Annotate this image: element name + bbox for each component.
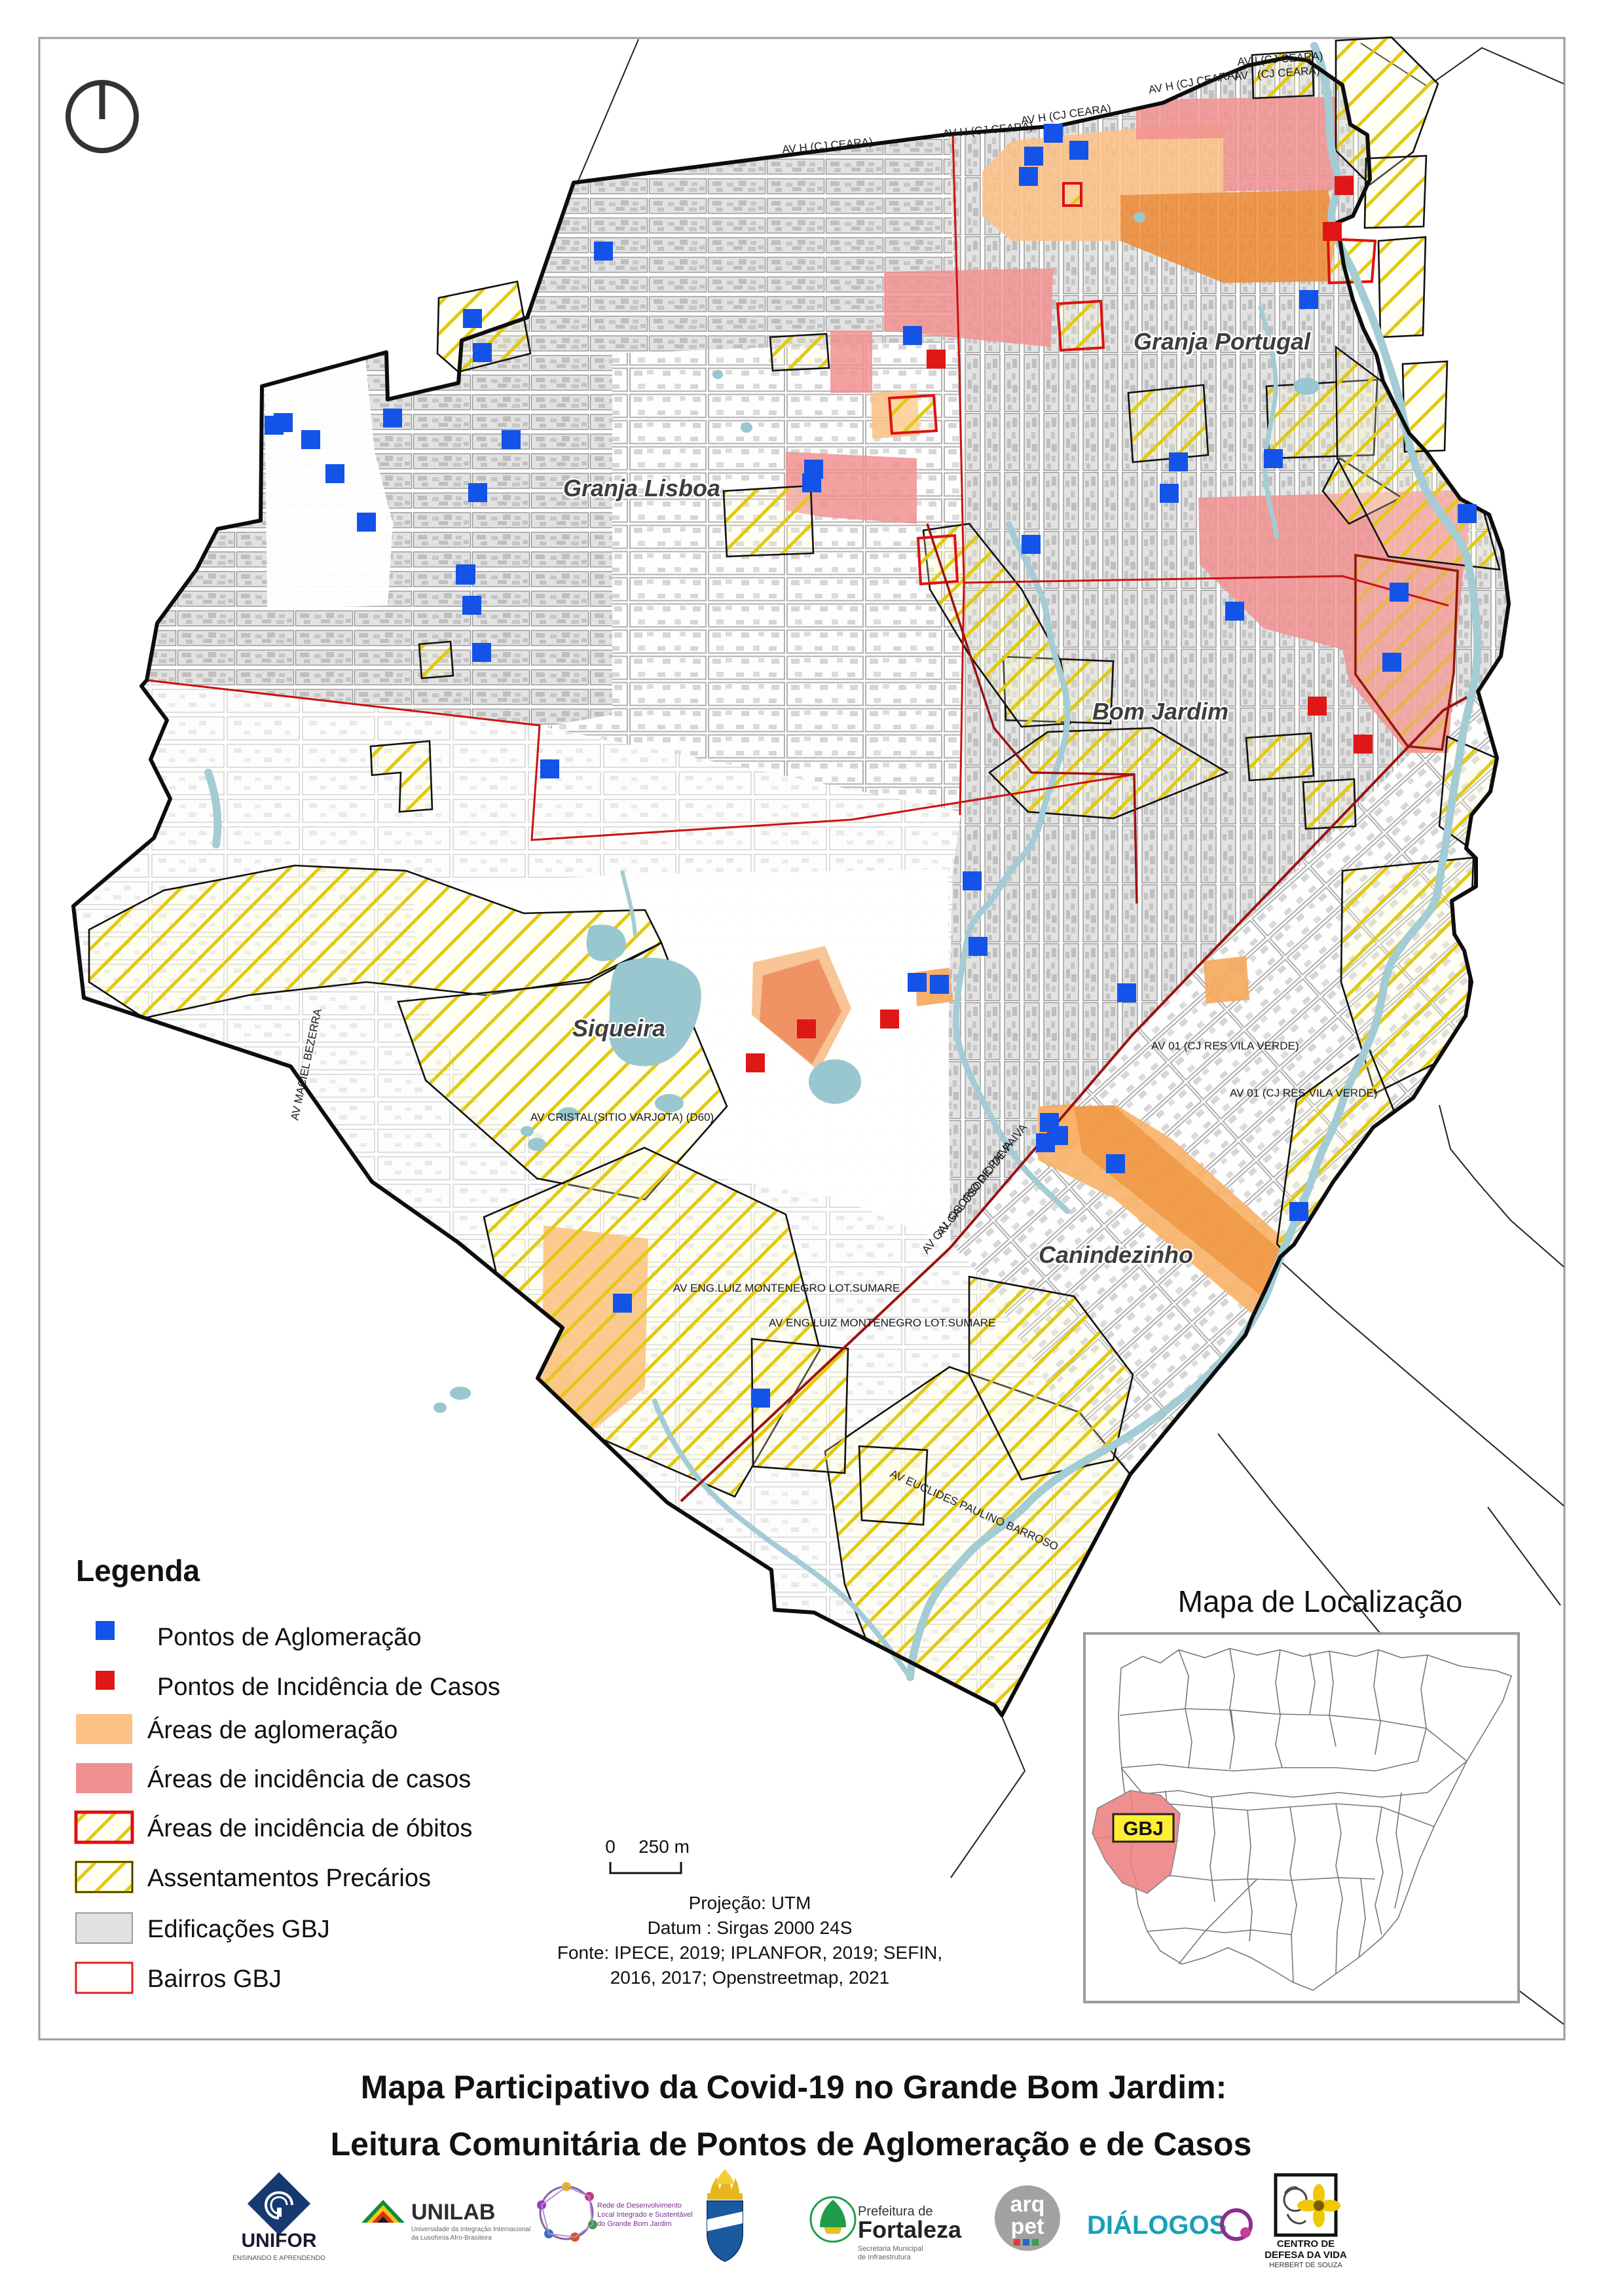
svg-text:Bairros GBJ: Bairros GBJ <box>147 1965 282 1993</box>
svg-text:UNILAB: UNILAB <box>411 2200 495 2225</box>
svg-text:da Lusofonia Afro-Brasileira: da Lusofonia Afro-Brasileira <box>411 2234 492 2242</box>
svg-text:Granja Lisboa: Granja Lisboa <box>563 475 720 501</box>
svg-text:CENTRO DE: CENTRO DE <box>1277 2238 1335 2250</box>
svg-text:Fortaleza: Fortaleza <box>858 2216 962 2243</box>
svg-text:Áreas de incidência de casos: Áreas de incidência de casos <box>147 1765 471 1793</box>
svg-text:Universidade da Integração Int: Universidade da Integração Internacional <box>411 2226 530 2233</box>
svg-text:pet: pet <box>1011 2214 1044 2239</box>
svg-text:Datum : Sirgas 2000 24S: Datum : Sirgas 2000 24S <box>648 1918 853 1938</box>
svg-text:GBJ: GBJ <box>1123 1818 1164 1840</box>
svg-text:Mapa Participativo da Covid-19: Mapa Participativo da Covid-19 no Grande… <box>361 2069 1227 2105</box>
svg-text:AV ENG.LUIZ MONTENEGRO LOT.SU: AV ENG.LUIZ MONTENEGRO LOT.SUMARE <box>769 1317 995 1329</box>
svg-text:Assentamentos Precários: Assentamentos Precários <box>147 1865 431 1892</box>
svg-text:Pontos de Incidência de Casos: Pontos de Incidência de Casos <box>157 1673 500 1701</box>
svg-text:UNIFOR: UNIFOR <box>242 2230 317 2251</box>
svg-text:DEFESA DA VIDA: DEFESA DA VIDA <box>1264 2250 1347 2261</box>
svg-text:0: 0 <box>605 1836 616 1857</box>
svg-text:Leitura Comunitária de Pontos: Leitura Comunitária de Pontos de Aglomer… <box>331 2126 1252 2162</box>
svg-text:Pontos de Aglomeração: Pontos de Aglomeração <box>157 1624 422 1651</box>
svg-text:Projeção: UTM: Projeção: UTM <box>689 1893 811 1913</box>
svg-text:AV ENG.LUIZ MONTENEGRO LOT.SU: AV ENG.LUIZ MONTENEGRO LOT.SUMARE <box>673 1282 900 1294</box>
svg-text:Fonte: IPECE, 2019; IPLANFOR,: Fonte: IPECE, 2019; IPLANFOR, 2019; SEFI… <box>557 1942 942 1963</box>
svg-text:Rede de Desenvolvimento: Rede de Desenvolvimento <box>597 2202 682 2210</box>
svg-text:Secretaria Municipal: Secretaria Municipal <box>858 2245 923 2253</box>
svg-text:do Grande Bom Jardim: do Grande Bom Jardim <box>597 2220 672 2228</box>
svg-text:Bom Jardim: Bom Jardim <box>1092 698 1228 725</box>
svg-text:arq: arq <box>1010 2192 1045 2217</box>
svg-text:AV CRISTAL(SITIO VARJOTA) (: AV CRISTAL(SITIO VARJOTA) (D60) <box>530 1111 714 1123</box>
svg-text:DIÁLOGOS: DIÁLOGOS <box>1087 2210 1227 2240</box>
svg-text:Siqueira: Siqueira <box>572 1015 665 1042</box>
svg-text:Canindezinho: Canindezinho <box>1039 1241 1193 1268</box>
svg-text:de Infraestrutura: de Infraestrutura <box>858 2253 912 2261</box>
svg-text:Edificações GBJ: Edificações GBJ <box>147 1916 330 1943</box>
svg-text:2016, 2017; Openstreetmap, 202: 2016, 2017; Openstreetmap, 2021 <box>610 1967 890 1988</box>
svg-text:ENSINANDO E APRENDENDO: ENSINANDO E APRENDENDO <box>232 2255 325 2262</box>
svg-text:AV 01 (CJ RES VILA VERDE): AV 01 (CJ RES VILA VERDE) <box>1151 1040 1299 1052</box>
svg-text:Granja Portugal: Granja Portugal <box>1134 328 1311 355</box>
svg-text:AV 01 (CJ RES VILA VERDE): AV 01 (CJ RES VILA VERDE) <box>1230 1087 1377 1099</box>
svg-text:Mapa de Localização: Mapa de Localização <box>1178 1584 1463 1618</box>
svg-text:Áreas de incidência de óbitos: Áreas de incidência de óbitos <box>147 1814 472 1842</box>
svg-text:250 m: 250 m <box>638 1836 690 1857</box>
svg-text:Áreas de aglomeração: Áreas de aglomeração <box>147 1716 397 1744</box>
svg-text:Legenda: Legenda <box>76 1554 200 1588</box>
svg-text:HERBERT DE SOUZA: HERBERT DE SOUZA <box>1269 2261 1342 2269</box>
svg-text:Local Integrado e Sustentável: Local Integrado e Sustentável <box>597 2211 693 2219</box>
